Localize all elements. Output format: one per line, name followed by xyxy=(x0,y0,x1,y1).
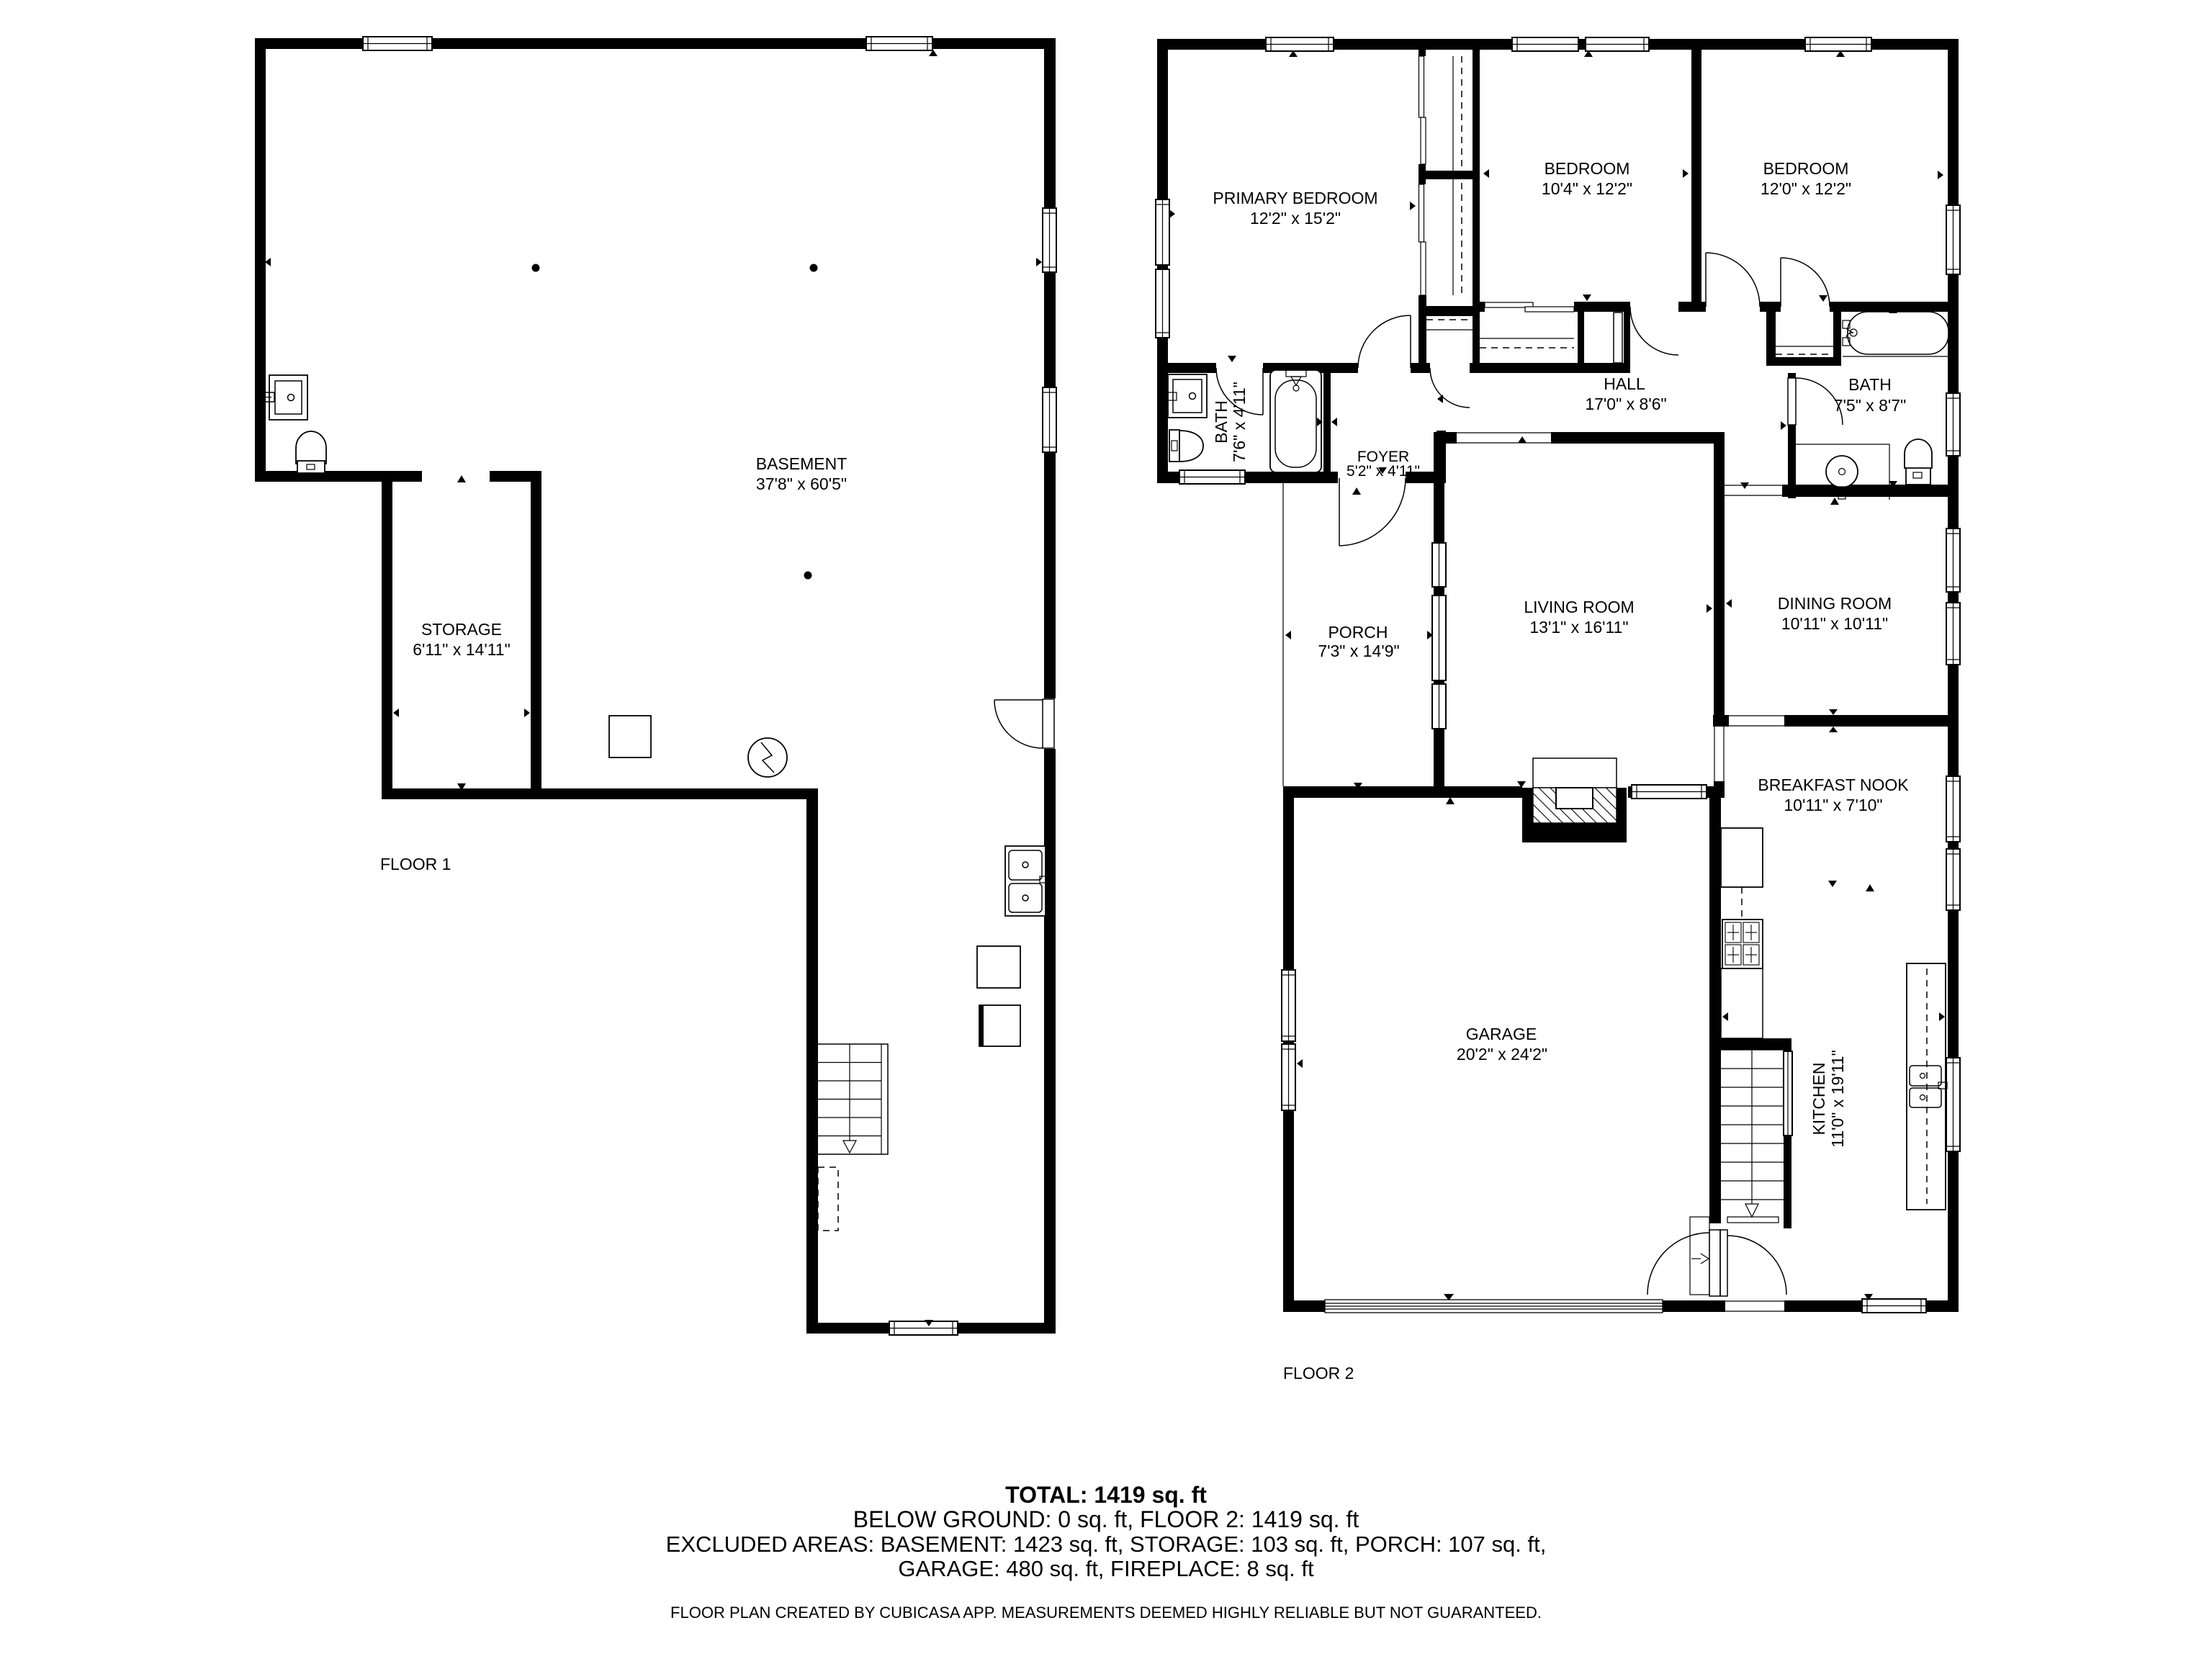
svg-text:GARAGE: 480 sq. ft, FIREPLACE:: GARAGE: 480 sq. ft, FIREPLACE: 8 sq. ft xyxy=(898,1556,1314,1581)
svg-text:7'5" x 8'7": 7'5" x 8'7" xyxy=(1834,396,1907,415)
svg-text:BATH: BATH xyxy=(1212,400,1231,444)
svg-text:10'4" x 12'2": 10'4" x 12'2" xyxy=(1542,179,1632,198)
svg-text:FLOOR PLAN CREATED BY CUBICASA: FLOOR PLAN CREATED BY CUBICASA APP. MEAS… xyxy=(670,1604,1542,1622)
svg-text:37'8" x 60'5": 37'8" x 60'5" xyxy=(756,475,847,493)
svg-text:STORAGE: STORAGE xyxy=(421,620,502,639)
svg-text:10'11" x 7'10": 10'11" x 7'10" xyxy=(1784,796,1882,814)
svg-text:BEDROOM: BEDROOM xyxy=(1763,159,1849,178)
svg-text:DINING ROOM: DINING ROOM xyxy=(1778,594,1892,613)
svg-text:12'2" x 15'2": 12'2" x 15'2" xyxy=(1250,209,1341,228)
svg-text:5'2" x 4'11": 5'2" x 4'11" xyxy=(1346,463,1420,480)
svg-text:BREAKFAST NOOK: BREAKFAST NOOK xyxy=(1758,775,1909,794)
svg-text:6'11" x 14'11": 6'11" x 14'11" xyxy=(413,640,511,659)
svg-text:BASEMENT: BASEMENT xyxy=(756,454,848,473)
svg-text:BATH: BATH xyxy=(1848,375,1892,394)
svg-text:HALL: HALL xyxy=(1604,374,1645,393)
svg-text:FLOOR 2: FLOOR 2 xyxy=(1283,1364,1354,1382)
svg-text:PORCH: PORCH xyxy=(1328,623,1388,642)
svg-text:13'1" x 16'11": 13'1" x 16'11" xyxy=(1529,618,1628,637)
svg-text:GARAGE: GARAGE xyxy=(1466,1025,1537,1043)
svg-text:20'2" x 24'2": 20'2" x 24'2" xyxy=(1457,1045,1547,1064)
svg-text:PRIMARY BEDROOM: PRIMARY BEDROOM xyxy=(1213,189,1377,207)
svg-text:12'0" x 12'2": 12'0" x 12'2" xyxy=(1761,179,1851,198)
svg-text:11'0" x 19'11": 11'0" x 19'11" xyxy=(1828,1050,1847,1148)
svg-text:FLOOR 1: FLOOR 1 xyxy=(380,855,451,873)
svg-text:7'6" x 4'11": 7'6" x 4'11" xyxy=(1230,382,1249,462)
svg-text:EXCLUDED AREAS: BASEMENT: 1423: EXCLUDED AREAS: BASEMENT: 1423 sq. ft, S… xyxy=(666,1532,1547,1557)
svg-text:BELOW GROUND: 0 sq. ft, FLOOR: BELOW GROUND: 0 sq. ft, FLOOR 2: 1419 sq… xyxy=(853,1506,1359,1532)
svg-text:10'11" x 10'11": 10'11" x 10'11" xyxy=(1781,614,1888,633)
svg-text:KITCHEN: KITCHEN xyxy=(1809,1063,1828,1136)
svg-text:7'3" x 14'9": 7'3" x 14'9" xyxy=(1318,642,1399,660)
svg-text:BEDROOM: BEDROOM xyxy=(1545,159,1630,178)
svg-text:LIVING ROOM: LIVING ROOM xyxy=(1524,598,1634,616)
svg-text:17'0" x 8'6": 17'0" x 8'6" xyxy=(1585,395,1666,413)
svg-text:TOTAL: 1419 sq. ft: TOTAL: 1419 sq. ft xyxy=(1005,1482,1207,1508)
